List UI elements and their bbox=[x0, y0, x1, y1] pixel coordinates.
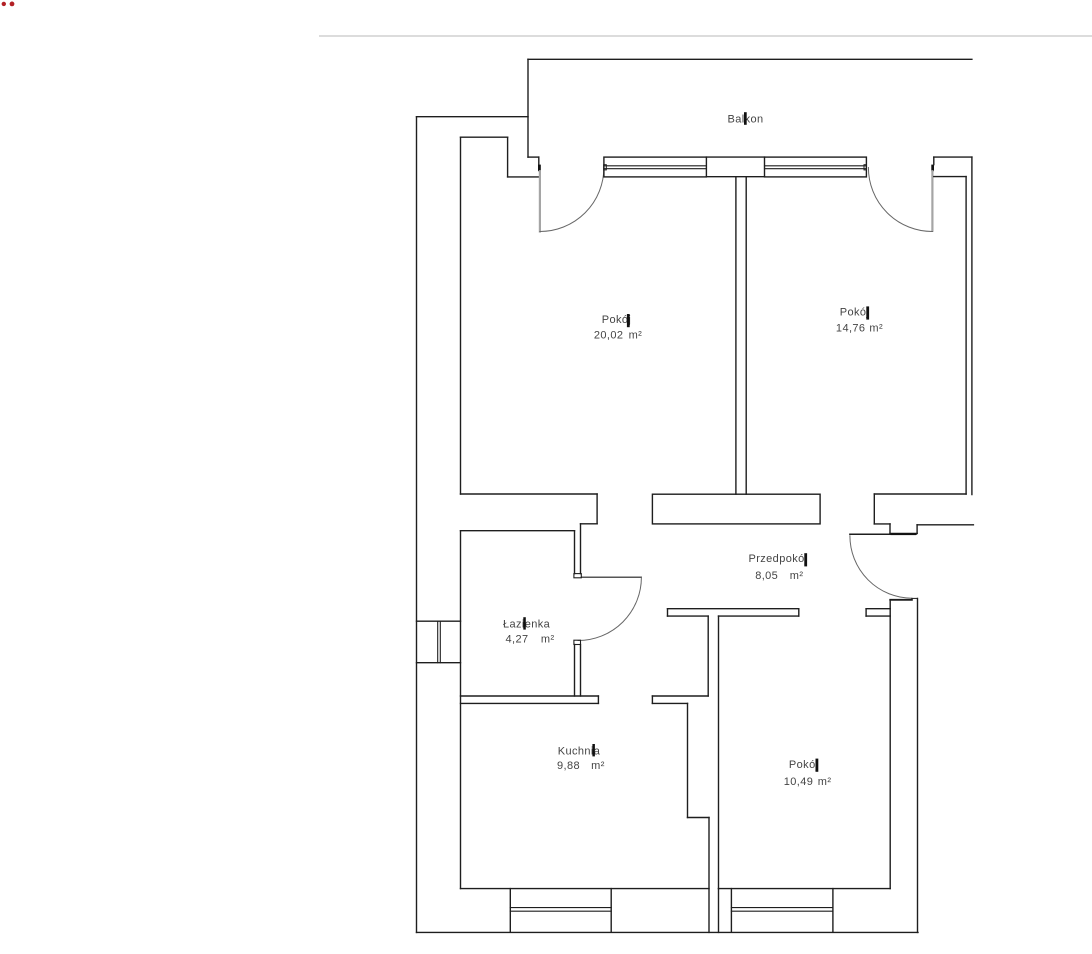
svg-text:Pokój: Pokój bbox=[789, 759, 819, 771]
svg-text:m²: m² bbox=[629, 330, 643, 342]
svg-text:m²: m² bbox=[869, 323, 883, 335]
svg-text:Przedpokój: Przedpokój bbox=[748, 553, 807, 565]
svg-text:Pokój: Pokój bbox=[840, 307, 870, 319]
svg-text:4,27: 4,27 bbox=[505, 633, 528, 645]
svg-text:Łazienka: Łazienka bbox=[503, 619, 551, 631]
svg-text:m²: m² bbox=[541, 633, 555, 645]
svg-text:8,05: 8,05 bbox=[755, 570, 778, 582]
svg-text:10,49: 10,49 bbox=[784, 776, 814, 788]
svg-text:m²: m² bbox=[591, 760, 605, 772]
svg-text:14,76: 14,76 bbox=[836, 323, 866, 335]
svg-text:9,88: 9,88 bbox=[557, 760, 580, 772]
svg-text:m²: m² bbox=[818, 776, 832, 788]
svg-text:Pokój: Pokój bbox=[602, 314, 632, 326]
svg-text:m²: m² bbox=[790, 570, 804, 582]
svg-text:20,02: 20,02 bbox=[594, 330, 624, 342]
